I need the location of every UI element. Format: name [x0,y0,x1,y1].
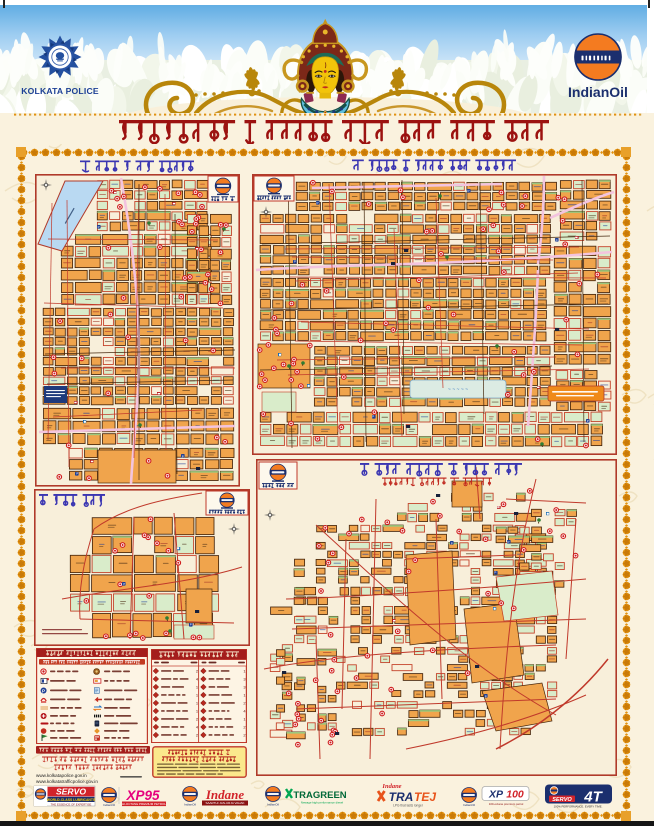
svg-text:IndianOil: IndianOil [184,803,196,807]
svg-text:Indane: Indane [381,783,401,790]
svg-text:IndianOil: IndianOil [463,803,475,807]
svg-text:100-octane premium petrol: 100-octane premium petrol [489,802,524,806]
svg-text:WORLD-CLASS LUBRICANTS: WORLD-CLASS LUBRICANTS [47,798,96,802]
svg-text:TRA: TRA [389,790,414,804]
svg-text:HI-OCTANE PREMIUM PETROL: HI-OCTANE PREMIUM PETROL [122,802,166,806]
svg-text:100% PERFORMANCE. EVERY TIME.: 100% PERFORMANCE. EVERY TIME. [554,805,603,809]
svg-text:SERVO: SERVO [552,797,572,803]
svg-text:IndianOil: IndianOil [103,803,115,807]
svg-text:TEJ: TEJ [414,790,436,804]
svg-text:THE ESSENCE OF EXPERTISE: THE ESSENCE OF EXPERTISE [51,802,92,806]
svg-text:TRAGREEN: TRAGREEN [293,790,346,801]
svg-text:XP95: XP95 [125,788,160,803]
svg-text:Newage high performance diesel: Newage high performance diesel [301,801,344,805]
svg-text:4T: 4T [583,789,603,806]
svg-text:SERVO: SERVO [56,787,86,797]
svg-text:IndianOil: IndianOil [267,803,279,807]
svg-text:SAARTHI JAN-URJA VAHAK: SAARTHI JAN-URJA VAHAK [206,801,245,805]
svg-text:XP: XP [488,789,504,801]
svg-text:100: 100 [506,789,524,801]
svg-text:LPG that lasts longer: LPG that lasts longer [393,804,424,808]
svg-text:Indane: Indane [205,787,245,802]
